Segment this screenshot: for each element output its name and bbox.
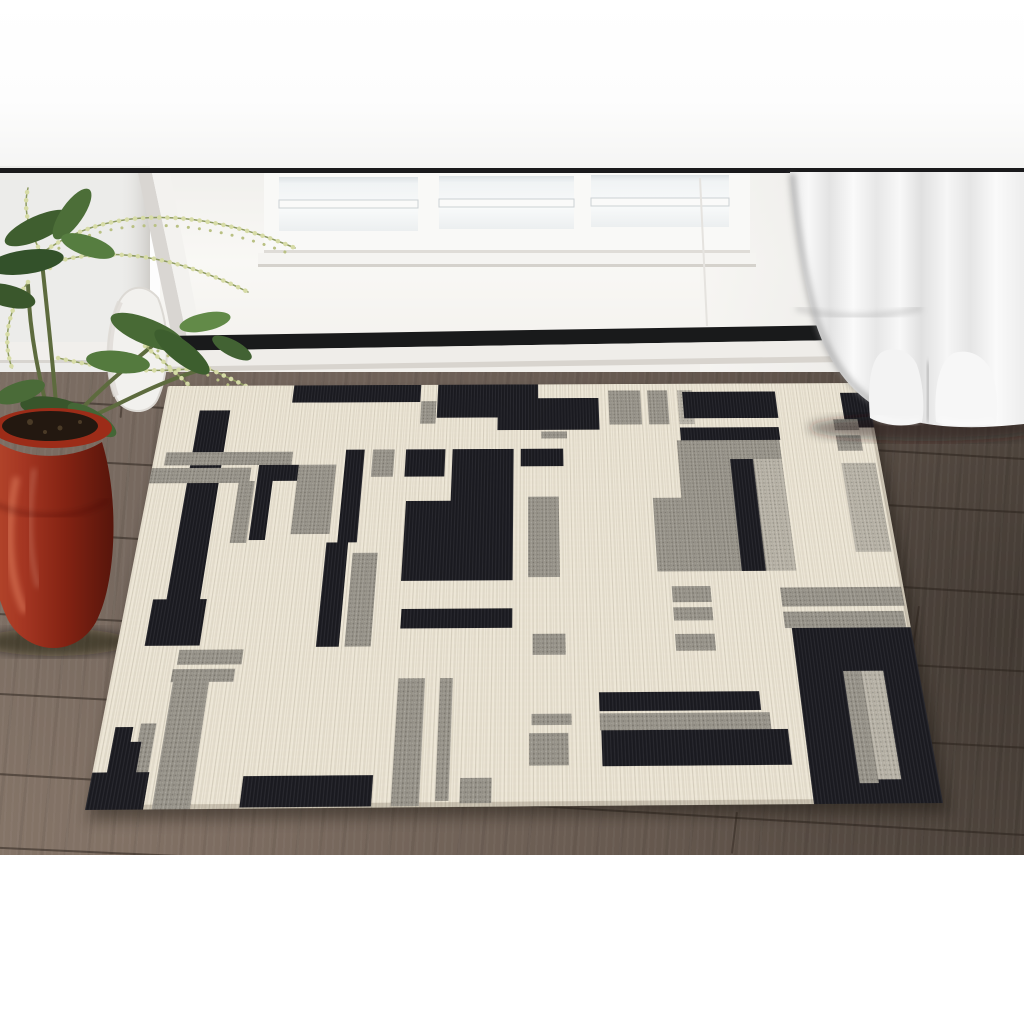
photo-bottom-margin (0, 855, 1024, 1024)
product-photo-canvas (0, 0, 1024, 1024)
pot-body (0, 438, 113, 648)
photo (0, 0, 1024, 855)
plant-pot (0, 408, 113, 648)
wall (0, 0, 1024, 168)
window-sash-2 (439, 199, 574, 207)
window-sash-3 (591, 198, 729, 206)
sheer-curtain (730, 160, 1024, 460)
curtain-crease (927, 362, 929, 422)
pot-soil (2, 411, 98, 441)
